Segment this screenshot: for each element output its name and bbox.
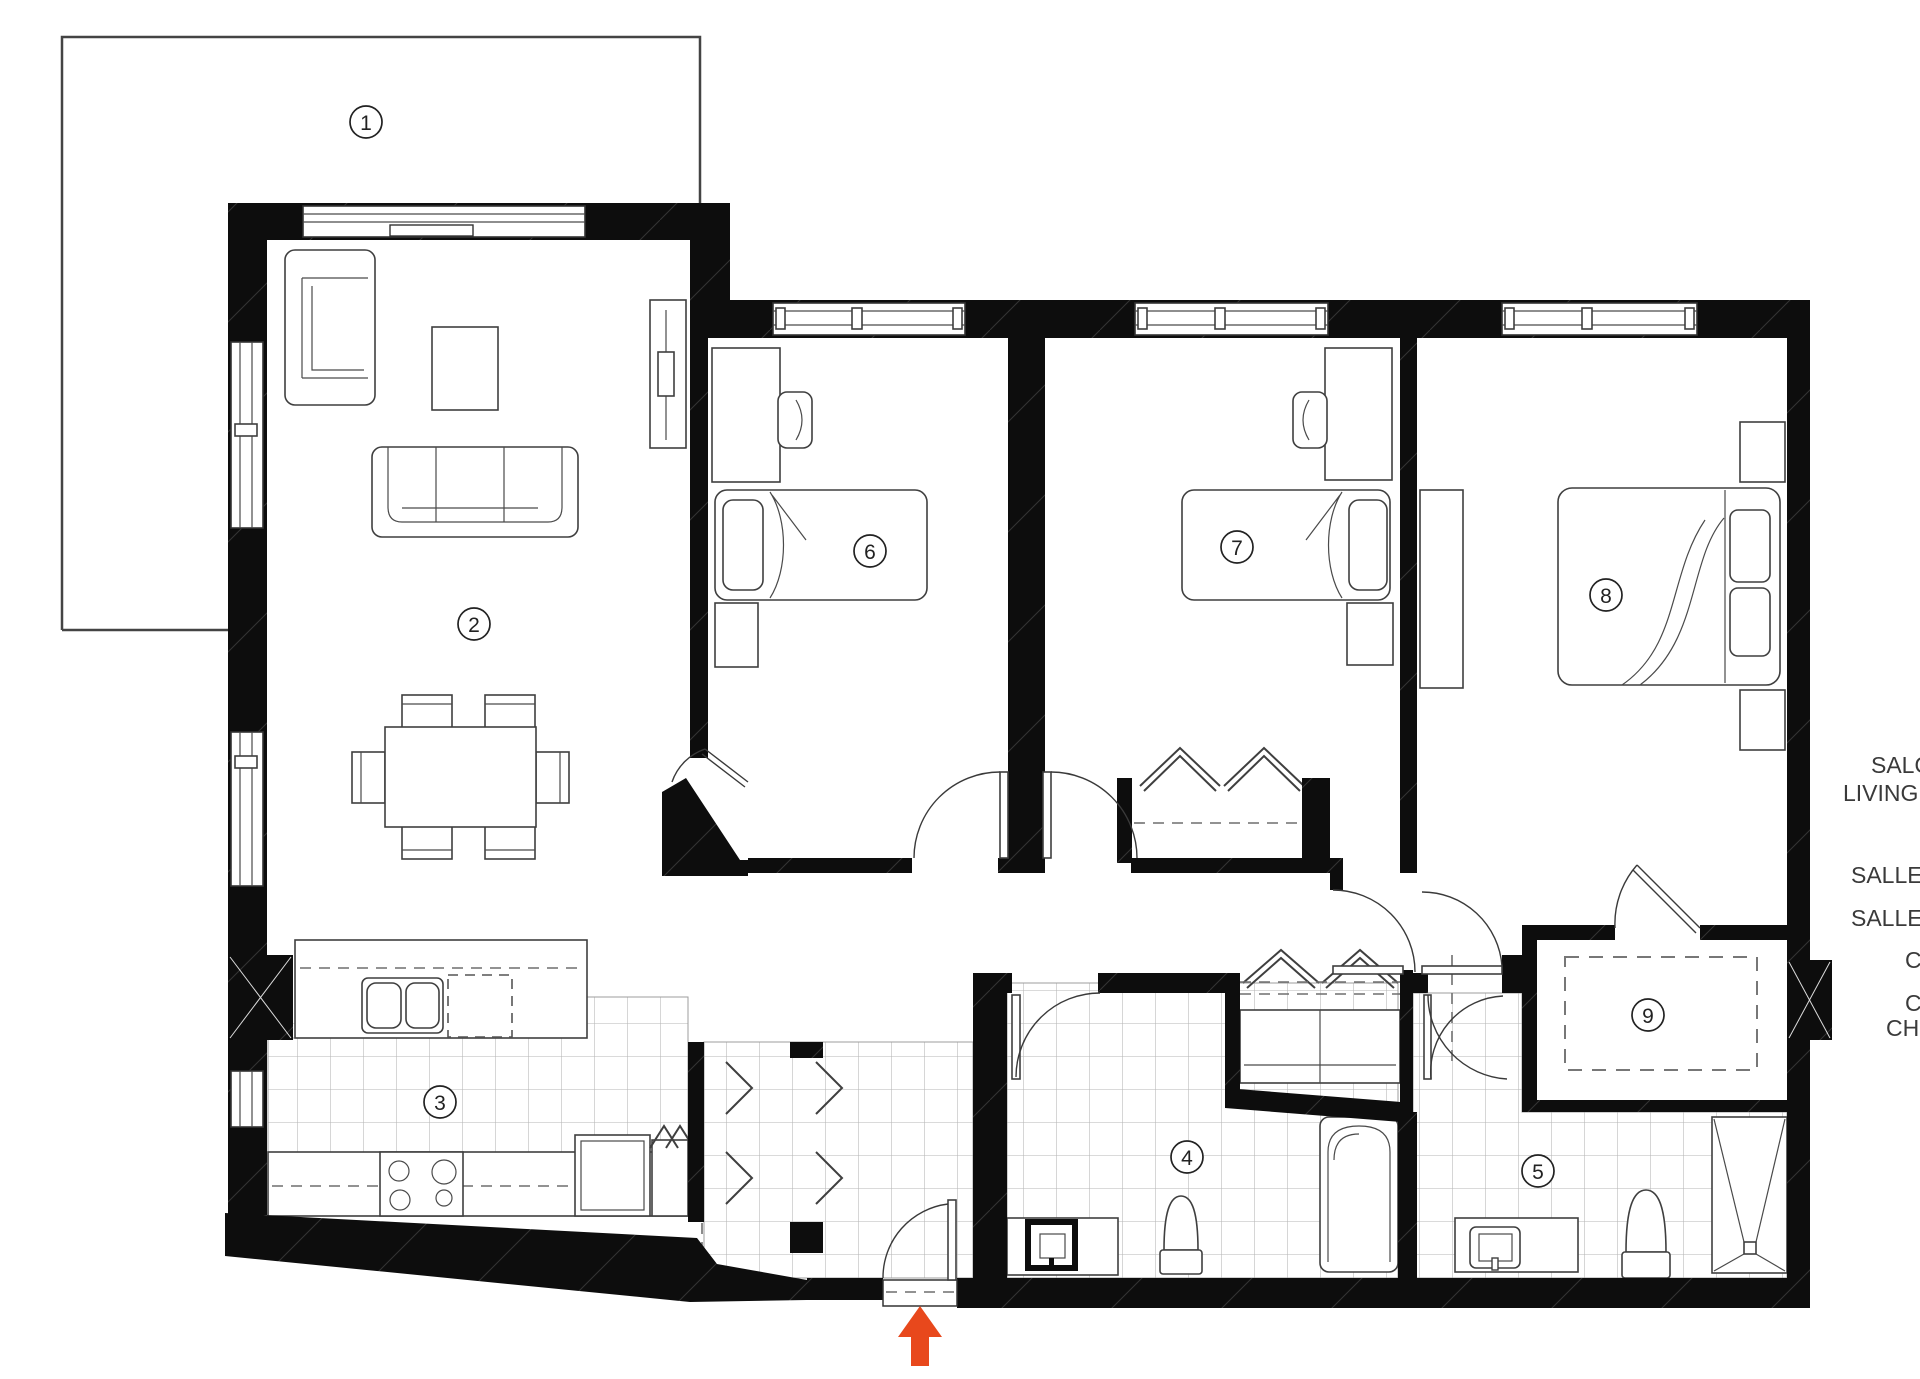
single-bed [715,490,927,600]
folding-cabinet [650,1126,694,1216]
room-number: 8 [1600,585,1612,608]
room-number: 4 [1181,1147,1193,1170]
room-badge-4: 4 [1171,1141,1203,1173]
stove [380,1152,463,1216]
legend-label-salle-2: SALLE [1851,905,1920,931]
single-bed [1182,490,1390,600]
tv-unit [650,300,686,448]
bedroom8-door [1422,892,1502,974]
dishwasher [448,975,512,1037]
legend: SALO LIVING R SALLE SALLE C C CH [1843,752,1920,1041]
room-badge-8: 8 [1590,579,1622,611]
desk [1325,348,1392,480]
nightstand [1740,690,1785,750]
living-room-furniture [285,250,686,859]
room-number: 1 [360,112,372,135]
left-window-lower [231,732,263,886]
left-window-upper [231,342,263,528]
bedroom7-closet [1134,748,1304,823]
legend-label-salon-fr: SALO [1871,752,1920,778]
loveseat [285,250,375,405]
bathtub [1320,1117,1398,1272]
bedroom6-furniture [712,348,927,667]
shower [1712,1117,1787,1273]
nightstand [715,603,758,667]
room-badge-2: 2 [458,608,490,640]
legend-label-living-room-en: LIVING R [1843,780,1920,806]
room-number: 5 [1532,1161,1544,1184]
legend-label-salle-1: SALLE [1851,862,1920,888]
room-number: 6 [864,541,876,564]
washer-counter [1007,1218,1118,1275]
closet9-door [1615,865,1700,933]
nightstand [1740,422,1785,482]
room-badge-5: 5 [1522,1155,1554,1187]
floor-plan: 1 2 3 4 5 6 7 8 [0,0,1920,1379]
room-number: 3 [434,1092,446,1115]
coffee-table [432,327,498,410]
entrance-arrow-icon [898,1306,942,1366]
living-room-window [303,206,585,237]
room-badge-3: 3 [424,1086,456,1118]
room-badge-1: 1 [350,106,382,138]
room-badge-9: 9 [1632,999,1664,1031]
vanity-sink [1455,1218,1578,1272]
floor-plan-page: 1 2 3 4 5 6 7 8 [0,0,1920,1379]
bedroom8-window [1502,303,1697,335]
legend-label-c-1: C [1905,947,1920,973]
bedroom7-window [1135,303,1328,335]
room-number: 9 [1642,1005,1654,1028]
nightstand [1347,603,1393,665]
desk-chair [778,392,812,448]
double-bed [1558,488,1780,685]
bedroom6-door [914,772,1008,858]
fridge [575,1135,650,1216]
desk [712,348,780,482]
sofa [372,447,578,537]
desk-chair [1293,392,1327,448]
room-badge-6: 6 [854,535,886,567]
room-badge-7: 7 [1221,531,1253,563]
kitchen-window [231,1071,263,1127]
legend-label-ch: CH [1886,1015,1919,1041]
kitchen-sink [362,978,443,1033]
wardrobe [1420,490,1463,688]
dining-set [352,695,569,859]
room-number: 2 [468,614,480,637]
bedroom7-furniture [1134,348,1393,823]
room-number: 7 [1231,537,1243,560]
legend-label-c-2: C [1905,990,1920,1016]
bedroom6-window [773,303,965,335]
